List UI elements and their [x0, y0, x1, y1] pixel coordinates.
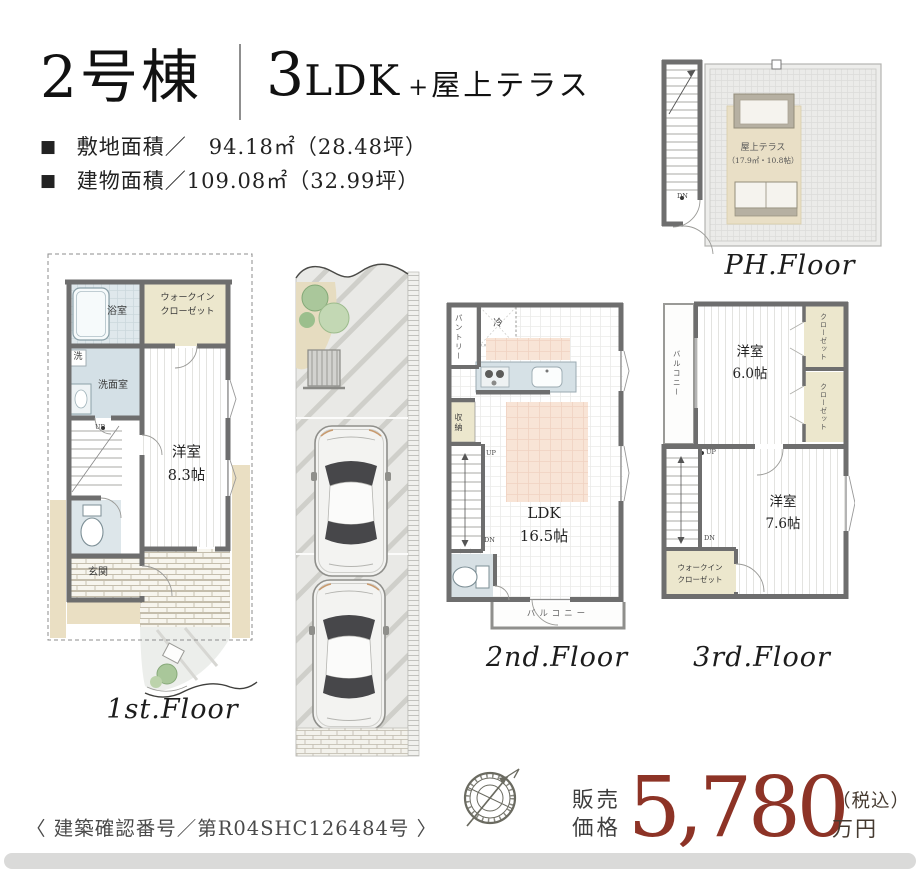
terrace-marker [772, 60, 781, 69]
floor-plan-3f: バルコニー 洋室 6.0帖 クローゼット クローゼット 洋室 7.6帖 ウォーク… [655, 296, 855, 608]
driveway-drawing [293, 258, 423, 763]
stair-dn-label: DN [704, 534, 715, 544]
bedroom-label: 洋室 8.3帖 [143, 442, 230, 488]
living-rug [506, 402, 588, 502]
site-margin [232, 465, 250, 638]
plan-extra: 屋上テラス [431, 62, 590, 104]
site-margin [50, 500, 66, 638]
wic-label: ウォークイン クローゼット [665, 562, 735, 586]
plan-plus: + [408, 73, 428, 101]
terrace-size-label: （17.9㎡・10.8帖） [703, 155, 823, 166]
kitchen-rug [486, 338, 570, 360]
fridge-label: 冷 [488, 317, 508, 331]
sidewalk-tiles [296, 728, 408, 756]
flyer-page: 2号棟 3 LDK + 屋上テラス ■ 敷地面積／ 94.18㎡（28.48坪）… [0, 0, 920, 872]
compass-rose-icon [452, 756, 532, 836]
pantry-label: パントリー [453, 310, 464, 366]
storage-label: 収納 [452, 406, 464, 440]
entrance-label: 玄関 [75, 565, 121, 580]
driveway [293, 258, 423, 763]
bath-label: 浴室 [97, 304, 137, 319]
price-label-top: 販売 [572, 787, 621, 815]
building-area-line: ■ 建物面積／109.08㎡（32.99坪） [40, 165, 419, 195]
wic-label: ウォークイン クローゼット [145, 292, 230, 319]
balcony-label: バルコニー [671, 338, 682, 410]
third-floor-name: 3rd.Floor [682, 642, 842, 673]
car-icon [311, 426, 391, 576]
site-area-text: 敷地面積／ 94.18㎡（28.48坪） [77, 135, 427, 159]
tree-icon [299, 312, 315, 328]
price-amount: 5,780 [628, 766, 846, 849]
price-tax-note: （税込） [832, 789, 910, 815]
bullet-icon: ■ [40, 171, 57, 191]
stair-up-label: UP [95, 423, 105, 433]
plan-number: 3 [266, 40, 304, 110]
bottom-divider-bar [4, 853, 916, 869]
gate-post-icon [303, 350, 345, 388]
stair-up-label: UP [706, 448, 716, 458]
washroom-label: 洗面室 [87, 378, 139, 393]
confirmation-number: 〈 建築確認番号／第R04SHC126484号 〉 [26, 812, 437, 841]
price-label: 販売 価格 [572, 787, 621, 844]
car-icon [309, 580, 389, 730]
closet-upper-label: クローゼット [818, 310, 829, 364]
floor-plan-1f: 浴室 ウォークイン クローゼット 洗 洗面室 洋室 8.3帖 玄関 UP [45, 250, 260, 710]
price-unit: 万円 [832, 815, 910, 844]
bullet-icon: ■ [40, 137, 57, 157]
shutter-marks [849, 476, 855, 531]
ldk-label: LDK 16.5帖 [498, 502, 590, 549]
floor-plan-ph: 屋上テラス （17.9㎡・10.8帖） DN [655, 50, 885, 255]
stair-up-label: UP [486, 449, 496, 459]
closet-lower-label: クローゼット [818, 378, 829, 436]
ph-floor-name: PH.Floor [705, 250, 875, 281]
second-floor-drawing [440, 296, 630, 641]
bush-icon [150, 676, 162, 688]
toilet-icon [453, 566, 489, 588]
bedroom-60-label: 洋室 6.0帖 [705, 342, 795, 385]
stair-dn-label: DN [484, 536, 495, 546]
building-area-text: 建物面積／109.08㎡（32.99坪） [77, 169, 420, 193]
bedroom-76-label: 洋室 7.6帖 [738, 492, 828, 535]
porch-floor [140, 549, 230, 627]
plan-type: 3 LDK + 屋上テラス [266, 40, 591, 110]
stair-dn-label: DN [677, 192, 688, 202]
kitchen-counter [476, 362, 576, 395]
tree-icon [319, 303, 349, 333]
price-label-bottom: 価格 [572, 815, 621, 843]
sofa-top-icon [734, 94, 794, 128]
building-title: 2号棟 [40, 30, 202, 114]
terrace-label: 屋上テラス [717, 142, 809, 156]
first-floor-name: 1st.Floor [85, 694, 260, 725]
shutter-marks [624, 351, 629, 501]
second-floor-name: 2nd.Floor [477, 642, 637, 673]
washer-label: 洗 [71, 351, 85, 365]
site-area-line: ■ 敷地面積／ 94.18㎡（28.48坪） [40, 131, 427, 161]
plan-ldk: LDK [304, 56, 400, 105]
balcony-label: バルコニー [502, 608, 614, 621]
toilet-icon [81, 505, 103, 546]
floor-plan-2f: パントリー 冷 収納 LDK 16.5帖 バルコニー UP DN [440, 296, 630, 641]
site-margin [67, 602, 140, 624]
boundary-strip [408, 272, 419, 756]
price-side: （税込） 万円 [832, 789, 910, 844]
sofa-bottom-icon [735, 182, 797, 216]
title-divider [239, 44, 241, 120]
